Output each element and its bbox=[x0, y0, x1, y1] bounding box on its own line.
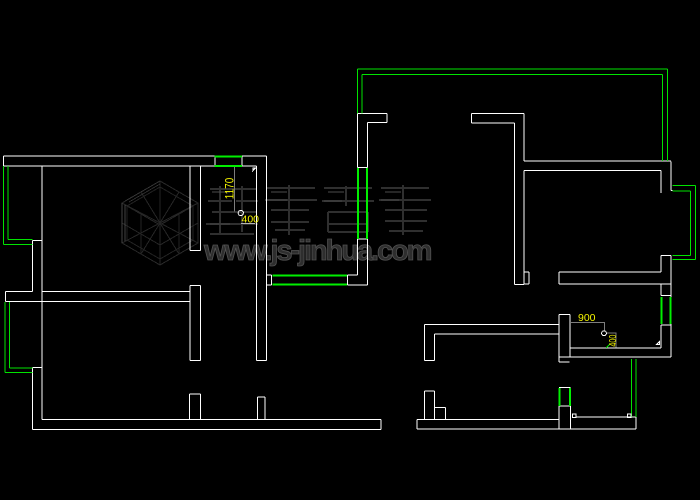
svg-text:900: 900 bbox=[578, 312, 596, 324]
svg-text:1170: 1170 bbox=[222, 178, 236, 200]
svg-text:400: 400 bbox=[608, 334, 619, 346]
svg-text:400: 400 bbox=[242, 214, 260, 226]
svg-text:www.js-jinhua.com: www.js-jinhua.com bbox=[203, 235, 432, 267]
